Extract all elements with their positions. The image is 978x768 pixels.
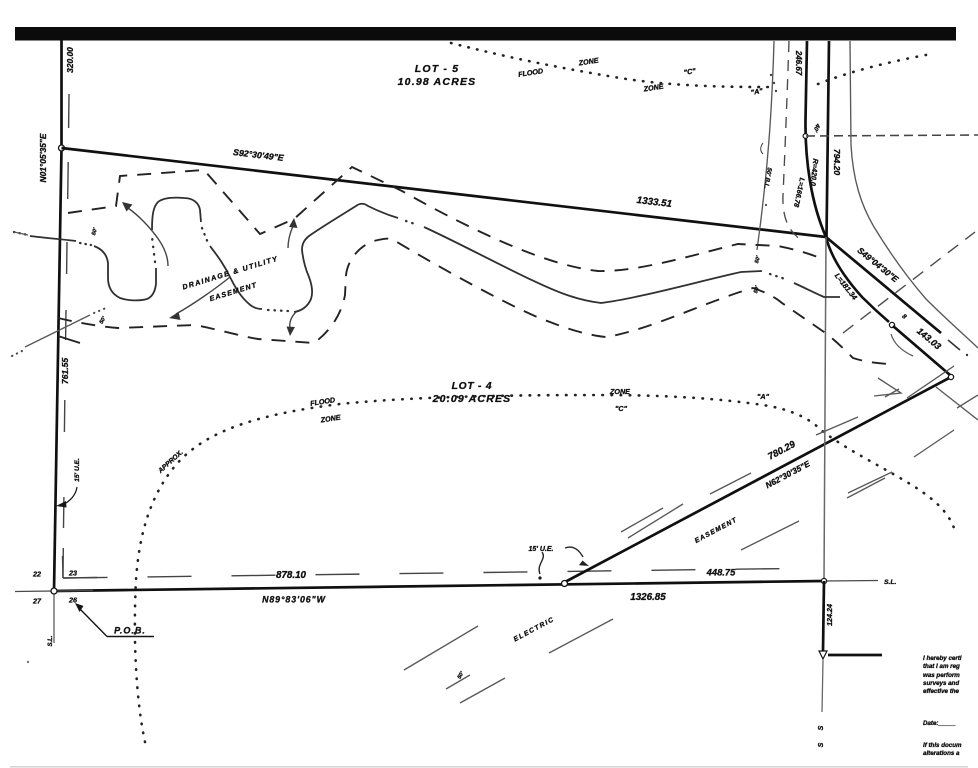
svg-text:27: 27 bbox=[32, 597, 42, 606]
svg-text:S92°30'49"E: S92°30'49"E bbox=[233, 147, 286, 163]
svg-text:15' U.E.: 15' U.E. bbox=[528, 546, 553, 553]
svg-text:794.20: 794.20 bbox=[832, 149, 842, 176]
svg-text:alterations a: alterations a bbox=[923, 750, 960, 757]
svg-text:ZONE: ZONE bbox=[319, 412, 341, 424]
svg-text:FLOOD: FLOOD bbox=[517, 66, 543, 79]
svg-text:APPROX.: APPROX. bbox=[157, 449, 185, 475]
svg-text:ELECTRIC: ELECTRIC bbox=[513, 616, 556, 643]
svg-text:LOT - 4: LOT - 4 bbox=[452, 381, 493, 392]
svg-text:1333.51: 1333.51 bbox=[636, 195, 672, 210]
svg-text:S: S bbox=[818, 742, 825, 747]
svg-text:S49°04'30"E: S49°04'30"E bbox=[855, 245, 900, 284]
svg-text:22: 22 bbox=[32, 570, 41, 579]
svg-text:ZONE: ZONE bbox=[577, 55, 599, 67]
svg-text:40': 40' bbox=[811, 121, 822, 133]
svg-text:761.55: 761.55 bbox=[60, 358, 70, 385]
svg-text:S.L.: S.L. bbox=[48, 635, 54, 646]
svg-text:1326.85: 1326.85 bbox=[630, 592, 666, 603]
svg-text:was perform: was perform bbox=[923, 672, 960, 679]
svg-text:surveys and: surveys and bbox=[923, 680, 959, 687]
svg-text:878.10: 878.10 bbox=[276, 570, 307, 581]
svg-text:Date:_____: Date:_____ bbox=[923, 720, 956, 727]
svg-text:"C": "C" bbox=[683, 66, 697, 77]
svg-text:LOT - 5: LOT - 5 bbox=[415, 63, 460, 75]
svg-text:S: S bbox=[818, 725, 825, 730]
svg-text:that I am reg: that I am reg bbox=[923, 663, 960, 670]
svg-text:ZONE: ZONE bbox=[642, 81, 664, 93]
svg-text:50' B.L.: 50' B.L. bbox=[762, 167, 773, 190]
svg-text:320.00: 320.00 bbox=[65, 47, 75, 73]
svg-text:ZONE: ZONE bbox=[609, 387, 630, 396]
svg-text:23: 23 bbox=[68, 569, 77, 578]
svg-text:20.09 ACRES: 20.09 ACRES bbox=[432, 393, 512, 405]
svg-text:246.67: 246.67 bbox=[794, 50, 803, 76]
svg-text:L=166.78: L=166.78 bbox=[792, 177, 805, 208]
svg-text:S.L.: S.L. bbox=[884, 579, 897, 586]
svg-text:P.O.B.: P.O.B. bbox=[114, 626, 146, 636]
svg-text:8: 8 bbox=[900, 313, 908, 321]
svg-text:"A": "A" bbox=[750, 86, 764, 97]
svg-text:N89°83'06"W: N89°83'06"W bbox=[262, 595, 326, 605]
svg-text:EASEMENT: EASEMENT bbox=[694, 516, 739, 544]
svg-text:780.29: 780.29 bbox=[766, 439, 798, 463]
svg-text:FLOOD: FLOOD bbox=[309, 395, 335, 408]
svg-text:26: 26 bbox=[68, 596, 78, 605]
svg-text:15' U.E.: 15' U.E. bbox=[74, 458, 81, 482]
svg-text:50': 50' bbox=[754, 255, 762, 264]
svg-text:"A": "A" bbox=[757, 392, 770, 401]
svg-text:R=420.0: R=420.0 bbox=[809, 158, 821, 186]
svg-text:50': 50' bbox=[99, 315, 108, 325]
svg-text:50': 50' bbox=[753, 285, 761, 294]
svg-text:124.24: 124.24 bbox=[825, 604, 834, 626]
svg-text:DRAINAGE & UTILITY: DRAINAGE & UTILITY bbox=[181, 254, 279, 292]
svg-text:448.75: 448.75 bbox=[706, 567, 736, 578]
svg-text:N01°05'35"E: N01°05'35"E bbox=[38, 133, 48, 182]
svg-text:effective the: effective the bbox=[923, 688, 960, 695]
svg-text:10.98 ACRES: 10.98 ACRES bbox=[398, 76, 477, 88]
svg-text:I hereby certi: I hereby certi bbox=[923, 655, 962, 662]
svg-text:"C": "C" bbox=[615, 404, 628, 413]
svg-text:If this docum: If this docum bbox=[923, 742, 962, 749]
svg-text:50': 50' bbox=[91, 227, 99, 236]
